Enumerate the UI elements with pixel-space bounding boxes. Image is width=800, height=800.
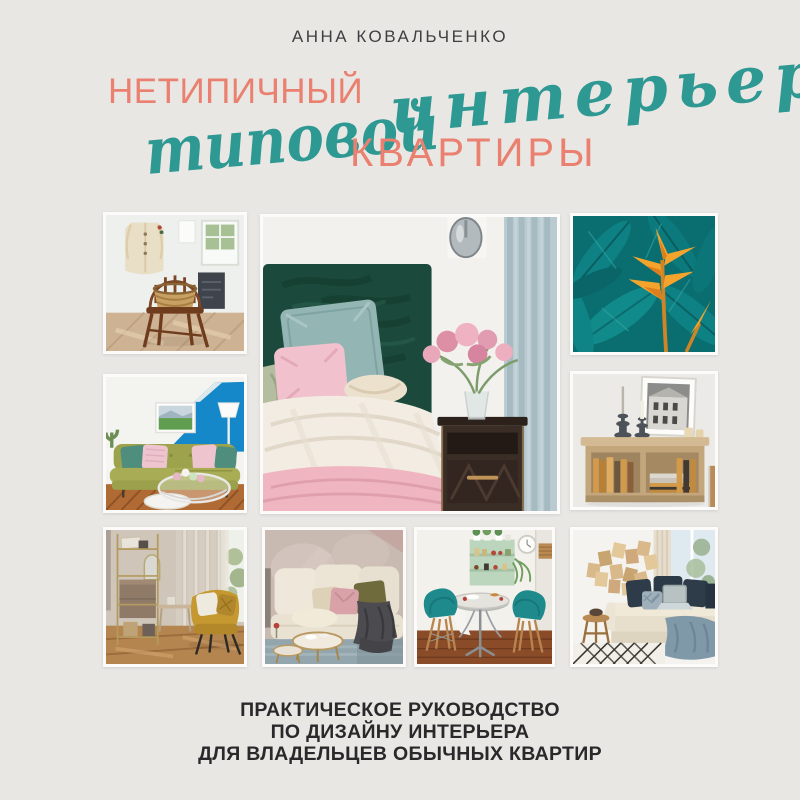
photo-daybed-wood-art (570, 527, 718, 667)
tropical-leaves-image (573, 216, 715, 352)
cream-sofa-image (265, 530, 403, 664)
book-cover: АННА КОВАЛЬЧЕНКО НЕТИПИЧНЫЙ интерьер тип… (0, 0, 800, 800)
photo-cream-sofa-lounge (262, 527, 406, 667)
daybed-image (573, 530, 715, 664)
brass-shelf-image (106, 530, 244, 664)
bedroom-image (263, 217, 557, 511)
author-name: АННА КОВАЛЬЧЕНКО (0, 27, 800, 47)
photo-dining-nook-teal-chairs (414, 527, 555, 667)
photo-wooden-sideboard-books (570, 371, 718, 510)
subtitle-block: ПРАКТИЧЕСКОЕ РУКОВОДСТВО ПО ДИЗАЙНУ ИНТЕ… (0, 699, 800, 765)
photo-bedroom-green-headboard (260, 214, 560, 514)
photo-chair-with-coat (103, 212, 247, 354)
photo-brass-shelf-yellow-armchair (103, 527, 247, 667)
photo-green-sofa-blue-wall (103, 374, 247, 513)
title-word-kvartiry: КВАРТИРЫ (350, 133, 598, 173)
dining-nook-image (417, 530, 552, 664)
subtitle-line-3: ДЛЯ ВЛАДЕЛЬЦЕВ ОБЫЧНЫХ КВАРТИР (0, 743, 800, 765)
sideboard-image (573, 374, 715, 507)
photo-tropical-leaves (570, 213, 718, 355)
subtitle-line-2: ПО ДИЗАЙНУ ИНТЕРЬЕРА (0, 721, 800, 743)
subtitle-line-1: ПРАКТИЧЕСКОЕ РУКОВОДСТВО (0, 699, 800, 721)
green-sofa-image (106, 377, 244, 510)
chair-with-coat-image (106, 215, 244, 351)
title-word-interior: интерьер (387, 42, 800, 144)
